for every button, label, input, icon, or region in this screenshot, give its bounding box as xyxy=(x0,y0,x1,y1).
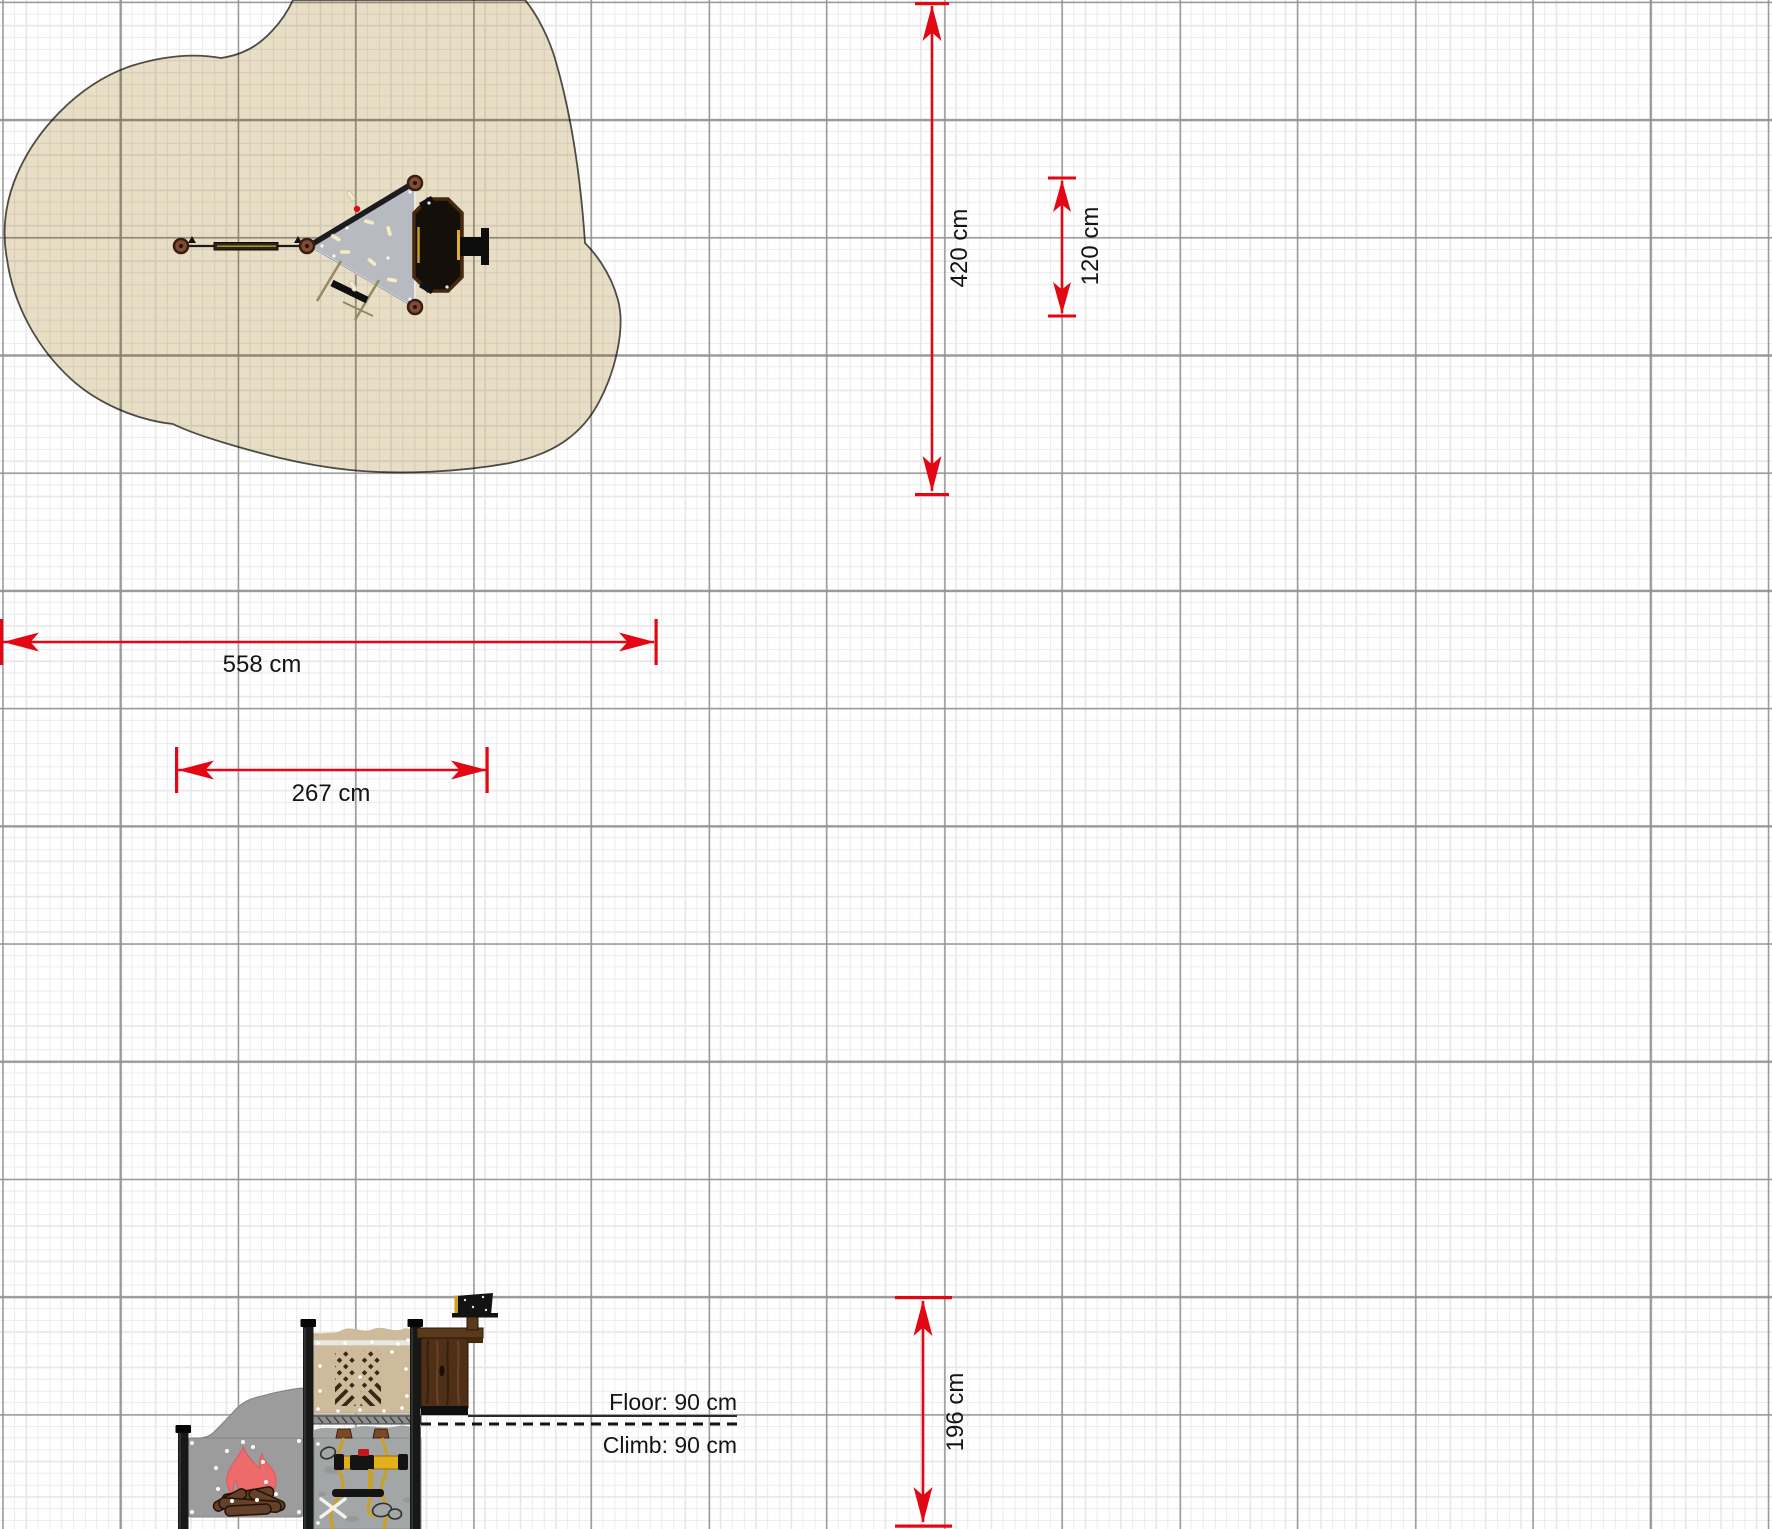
tower-bracket xyxy=(481,228,489,265)
dimension-label: 558 cm xyxy=(223,651,302,678)
wood-knot xyxy=(440,1366,445,1377)
climb-level-label: Climb: 90 cm xyxy=(603,1432,737,1458)
rope-hook xyxy=(336,1429,352,1438)
tower-bracket xyxy=(460,237,484,256)
dimension-120: 120 cm xyxy=(1048,177,1104,318)
roof-and-flag xyxy=(417,1293,498,1343)
dimension-label: 420 cm xyxy=(946,209,973,288)
dimension-558: 558 cm xyxy=(0,619,658,678)
elevation-equipment-side-view[interactable] xyxy=(176,1293,499,1529)
anchor-marker xyxy=(354,206,360,212)
rope-hook xyxy=(373,1429,389,1438)
wood-door-panel[interactable] xyxy=(421,1337,468,1415)
grip-bar xyxy=(332,1489,384,1497)
design-canvas[interactable]: Floor: 90 cm Climb: 90 cm 420 cm 120 cm xyxy=(0,0,1772,1529)
dimension-label: 120 cm xyxy=(1077,207,1104,286)
dimension-label: 267 cm xyxy=(292,780,371,807)
safety-zone-outline[interactable] xyxy=(5,0,621,472)
floor-level-label: Floor: 90 cm xyxy=(609,1389,737,1415)
drawing-layer: Floor: 90 cm Climb: 90 cm 420 cm 120 cm xyxy=(0,0,1772,1529)
campfire-panel[interactable] xyxy=(188,1438,303,1517)
dimension-420: 420 cm xyxy=(915,2,973,496)
dimension-196: 196 cm xyxy=(895,1296,969,1528)
floor-beam xyxy=(313,1416,421,1424)
dimension-label: 196 cm xyxy=(942,1373,969,1452)
climbing-panel[interactable] xyxy=(314,1426,421,1529)
safety-zone[interactable] xyxy=(5,0,621,472)
dimension-267: 267 cm xyxy=(175,747,489,807)
